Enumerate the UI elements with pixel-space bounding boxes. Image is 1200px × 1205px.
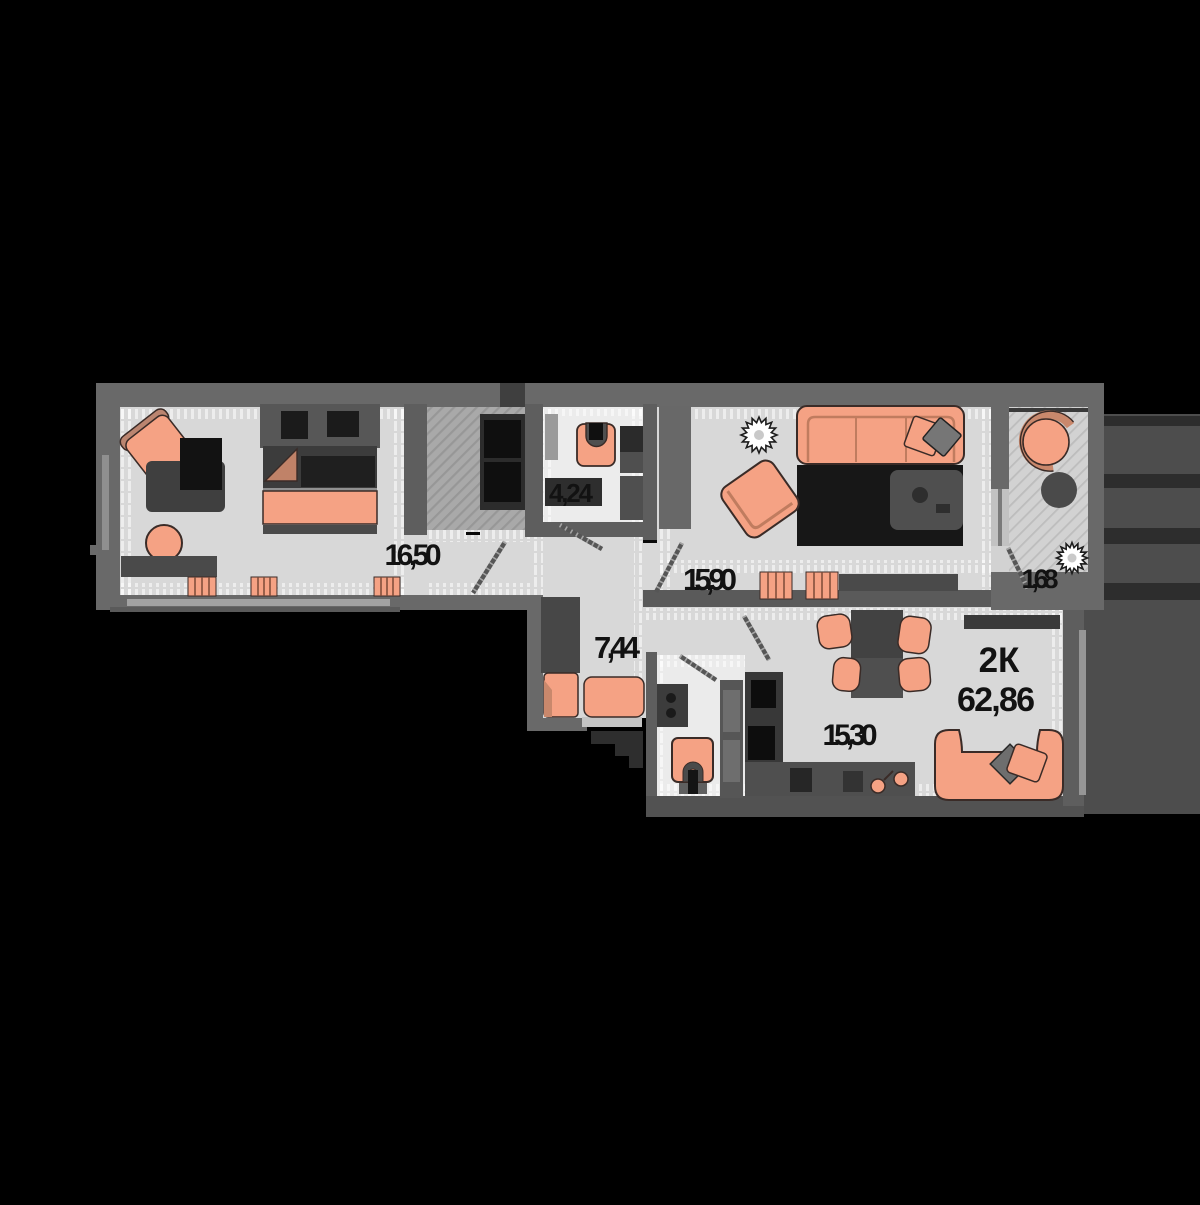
- svg-text:2К: 2К: [979, 641, 1020, 680]
- svg-text:62,86: 62,86: [957, 681, 1035, 719]
- svg-text:15,90: 15,90: [683, 562, 737, 597]
- svg-text:16,50: 16,50: [385, 539, 442, 572]
- svg-text:4,24: 4,24: [549, 478, 594, 508]
- svg-text:15,30: 15,30: [823, 719, 878, 752]
- svg-text:7,44: 7,44: [594, 630, 641, 665]
- svg-text:1,68: 1,68: [1022, 564, 1059, 594]
